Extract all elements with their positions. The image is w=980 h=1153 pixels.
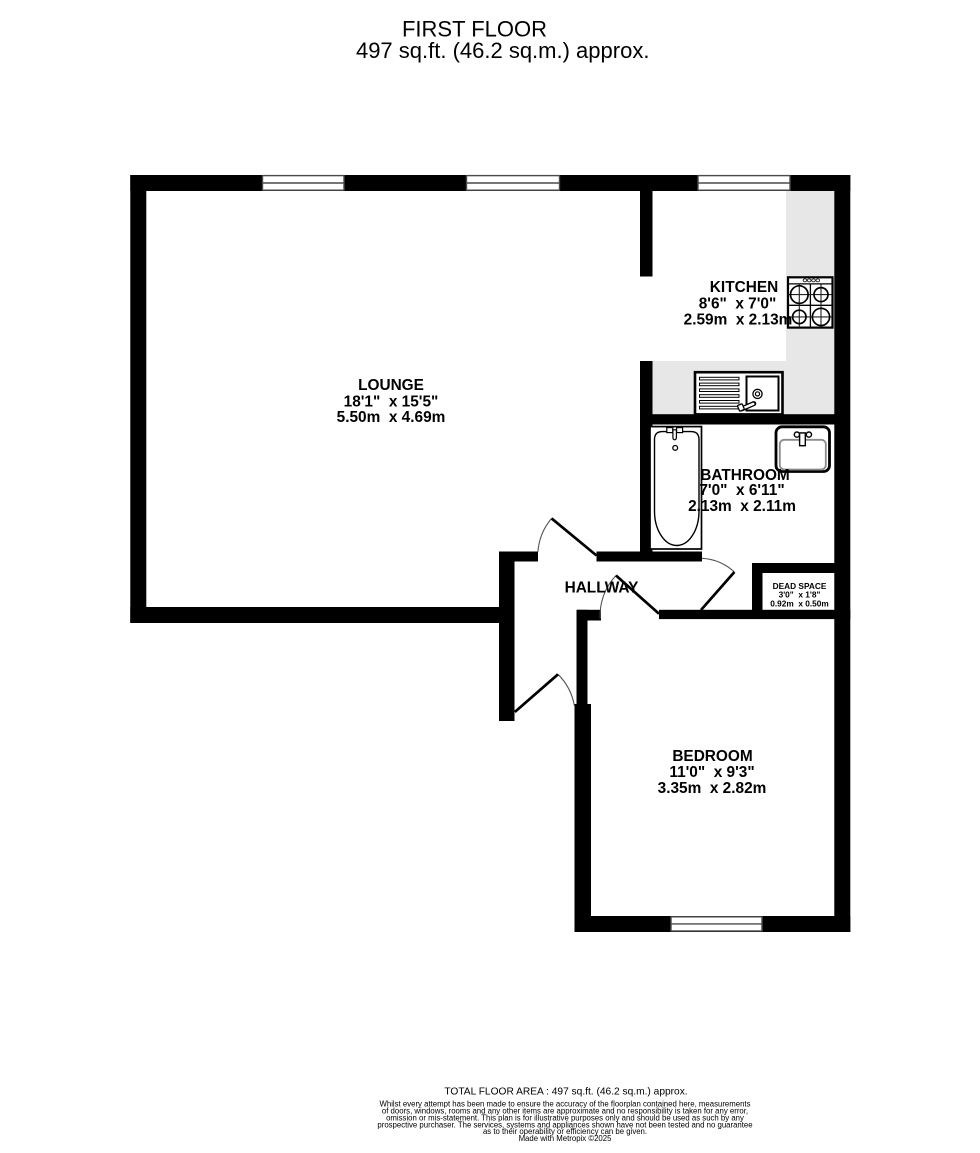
svg-text:5.50m x 4.69m: 5.50m x 4.69m — [337, 409, 446, 426]
svg-text:2.13m x 2.11m: 2.13m x 2.11m — [688, 498, 796, 515]
svg-text:Made with Metropix ©2025: Made with Metropix ©2025 — [519, 1134, 613, 1143]
svg-text:497 sq.ft. (46.2 sq.m.) approx: 497 sq.ft. (46.2 sq.m.) approx. — [356, 38, 649, 63]
svg-text:BEDROOM: BEDROOM — [672, 748, 752, 765]
svg-text:8'6" x 7'0": 8'6" x 7'0" — [699, 295, 777, 312]
svg-text:2.59m x 2.13m: 2.59m x 2.13m — [684, 312, 793, 329]
svg-text:11'0" x 9'3": 11'0" x 9'3" — [669, 764, 754, 781]
svg-text:7'0" x 6'11": 7'0" x 6'11" — [699, 482, 784, 499]
svg-text:3.35m x 2.82m: 3.35m x 2.82m — [658, 780, 767, 797]
svg-text:KITCHEN: KITCHEN — [710, 279, 778, 296]
svg-text:LOUNGE: LOUNGE — [358, 377, 424, 394]
svg-text:TOTAL FLOOR AREA : 497 sq.ft.: TOTAL FLOOR AREA : 497 sq.ft. (46.2 sq.m… — [444, 1087, 687, 1098]
svg-text:0.92m x 0.50m: 0.92m x 0.50m — [770, 598, 829, 608]
svg-text:18'1" x 15'5": 18'1" x 15'5" — [344, 393, 439, 410]
svg-text:HALLWAY: HALLWAY — [565, 579, 640, 596]
